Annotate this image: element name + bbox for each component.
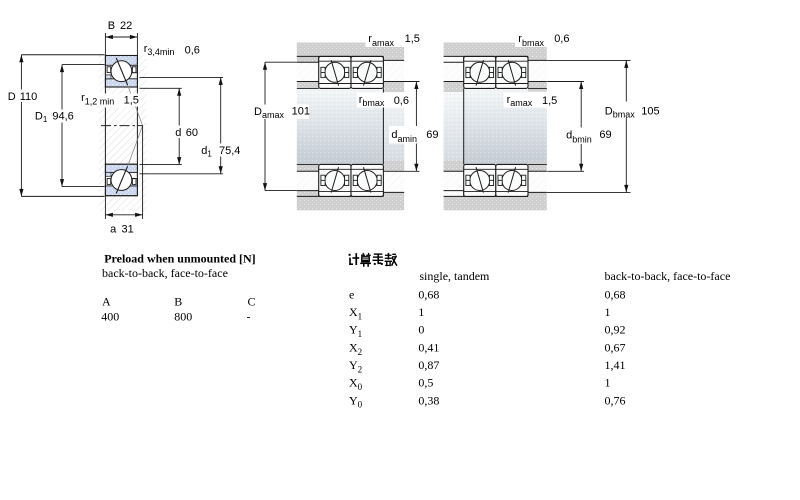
svg-text:r3,4min: r3,4min [144, 43, 175, 57]
svg-text:0,6: 0,6 [554, 33, 569, 45]
svg-text:1: 1 [418, 305, 424, 319]
svg-text:1,41: 1,41 [605, 358, 626, 372]
svg-text:0,5: 0,5 [418, 376, 433, 390]
svg-text:A: A [102, 295, 111, 309]
svg-text:single, tandem: single, tandem [419, 269, 490, 283]
svg-text:back-to-back, face-to-face: back-to-back, face-to-face [605, 269, 731, 283]
svg-text:0: 0 [418, 323, 424, 337]
svg-text:C: C [248, 295, 256, 309]
svg-text:1: 1 [605, 376, 611, 390]
svg-text:60: 60 [186, 127, 198, 139]
svg-text:-: - [247, 310, 251, 324]
svg-text:69: 69 [426, 129, 438, 141]
svg-text:X0: X0 [349, 376, 363, 392]
svg-text:0,68: 0,68 [605, 287, 626, 301]
svg-text:31: 31 [122, 223, 134, 235]
svg-text:D: D [8, 91, 16, 103]
svg-text:0,41: 0,41 [418, 340, 439, 354]
svg-text:0,6: 0,6 [185, 44, 200, 56]
svg-text:B: B [174, 295, 182, 309]
svg-text:0,92: 0,92 [605, 323, 626, 337]
svg-text:d: d [175, 127, 181, 139]
svg-text:Y1: Y1 [349, 323, 362, 339]
svg-text:0,6: 0,6 [394, 95, 409, 107]
svg-text:101: 101 [292, 106, 310, 118]
svg-text:1,5: 1,5 [405, 33, 420, 45]
svg-text:X2: X2 [349, 340, 362, 356]
svg-text:Y0: Y0 [349, 393, 363, 409]
svg-text:back-to-back, face-to-face: back-to-back, face-to-face [102, 266, 228, 280]
svg-text:1: 1 [605, 305, 611, 319]
svg-text:B: B [108, 20, 115, 32]
svg-text:a: a [110, 223, 117, 235]
svg-text:0,68: 0,68 [418, 287, 439, 301]
svg-text:400: 400 [101, 310, 119, 324]
svg-text:22: 22 [120, 20, 132, 32]
svg-text:Preload when unmounted [N]: Preload when unmounted [N] [104, 252, 255, 266]
svg-text:94,6: 94,6 [52, 111, 73, 123]
svg-text:Y2: Y2 [349, 358, 362, 374]
svg-text:X1: X1 [349, 305, 362, 321]
svg-text:0,87: 0,87 [418, 358, 439, 372]
svg-text:0,67: 0,67 [605, 340, 626, 354]
svg-text:1,5: 1,5 [542, 95, 557, 107]
svg-text:1,5: 1,5 [124, 94, 139, 106]
svg-text:75,4: 75,4 [219, 145, 240, 157]
svg-text:0,76: 0,76 [605, 393, 626, 407]
svg-text:69: 69 [599, 129, 611, 141]
svg-text:800: 800 [174, 310, 192, 324]
svg-text:0,38: 0,38 [418, 393, 439, 407]
svg-text:110: 110 [20, 91, 38, 103]
svg-text:105: 105 [641, 105, 659, 117]
svg-text:e: e [349, 287, 354, 301]
